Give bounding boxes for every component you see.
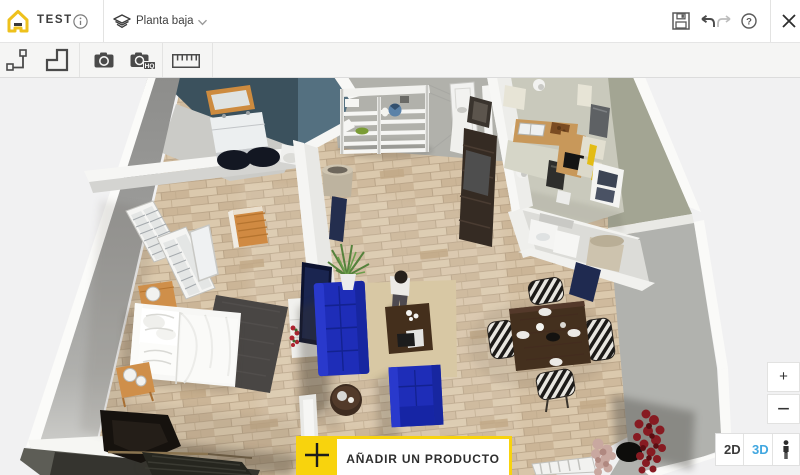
svg-text:?: ? <box>746 17 752 28</box>
svg-text:HQ: HQ <box>145 63 155 70</box>
